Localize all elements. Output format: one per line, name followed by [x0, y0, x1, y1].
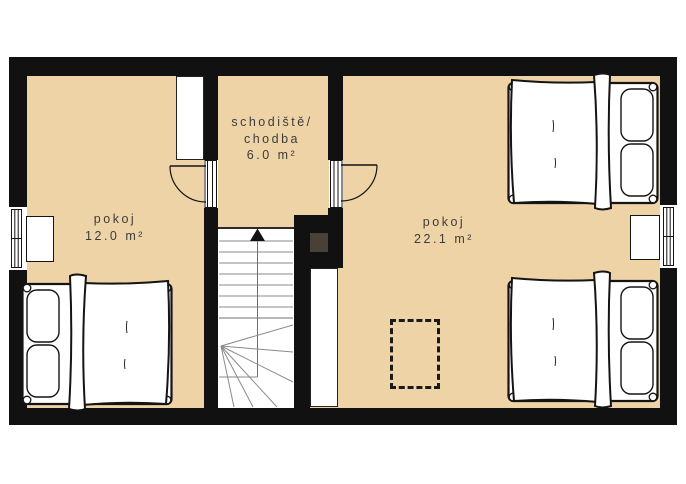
- hall-label: schodiště/ chodba 6.0 m²: [231, 114, 312, 164]
- door-right: [331, 161, 378, 208]
- door-left: [170, 161, 217, 208]
- bed-bottom-left: [23, 275, 172, 411]
- stairs-up-arrow-icon: [250, 229, 265, 242]
- bed-bottom-right: [509, 272, 658, 408]
- window-right: [664, 208, 674, 266]
- bed-top-right: [509, 74, 658, 210]
- room-left-label: pokoj 12.0 m²: [85, 211, 145, 244]
- room-right-label: pokoj 22.1 m²: [414, 214, 474, 247]
- hall-name-line1: schodiště/: [231, 114, 312, 131]
- room-right-name: pokoj: [414, 214, 474, 231]
- room-left-area: 12.0 m²: [85, 228, 145, 245]
- hall-name-line2: chodba: [231, 131, 312, 148]
- room-right-area: 22.1 m²: [414, 231, 474, 248]
- window-left: [12, 210, 22, 268]
- room-left-name: pokoj: [85, 211, 145, 228]
- floorplan: pokoj 12.0 m² pokoj 22.1 m² schodiště/ c…: [0, 0, 686, 484]
- stairs: [218, 228, 294, 407]
- hall-area: 6.0 m²: [231, 147, 312, 164]
